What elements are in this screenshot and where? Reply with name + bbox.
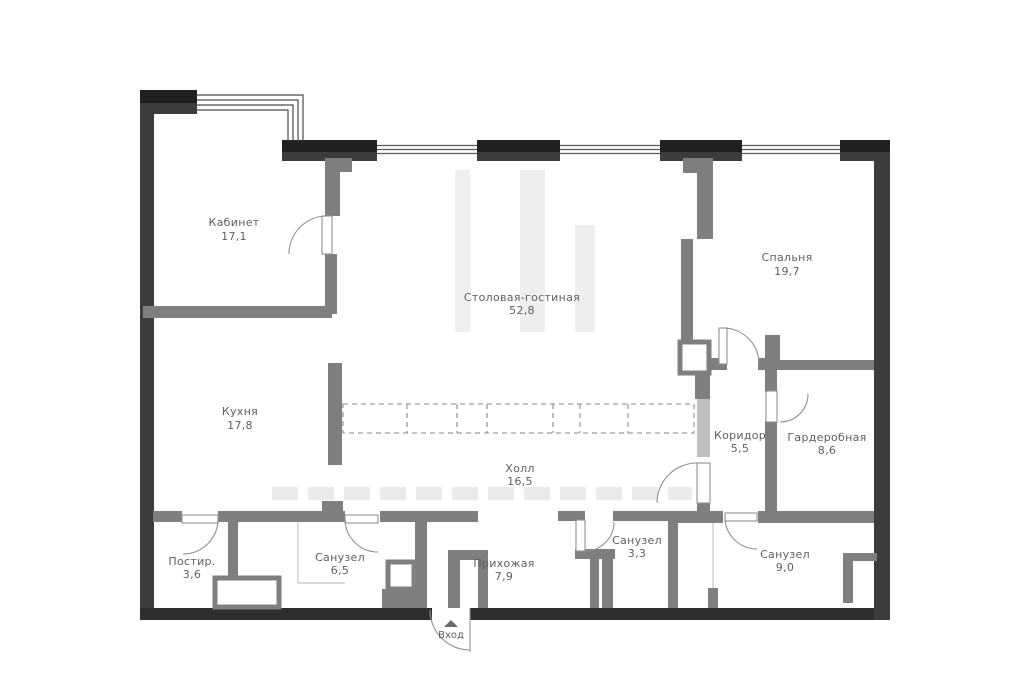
door-leaf <box>719 328 727 364</box>
svg-text:7,9: 7,9 <box>495 570 513 583</box>
svg-text:Спальня: Спальня <box>761 251 812 264</box>
door-arc <box>183 519 218 554</box>
door-leaf <box>766 391 777 422</box>
door-arc <box>289 216 327 254</box>
duct-box <box>680 342 709 373</box>
svg-text:Коридор: Коридор <box>714 429 766 442</box>
svg-text:Кухня: Кухня <box>222 405 258 418</box>
svg-text:3,6: 3,6 <box>183 568 201 581</box>
shaft-boxes <box>215 342 709 607</box>
svg-text:Санузел: Санузел <box>315 551 365 564</box>
duct-box <box>388 562 414 589</box>
entrance-arrow-icon <box>444 620 458 627</box>
room-label-sanuzel-1: Санузел 6,5 <box>315 551 365 577</box>
svg-text:17,8: 17,8 <box>227 419 253 432</box>
room-label-garderobnaya: Гардеробная 8,6 <box>787 431 866 457</box>
svg-text:Санузел: Санузел <box>760 548 810 561</box>
svg-text:Столовая-гостиная: Столовая-гостиная <box>464 291 580 304</box>
door-arc <box>780 394 808 422</box>
entrance-marker: Вход <box>438 620 464 641</box>
room-label-koridor: Коридор 5,5 <box>714 429 766 455</box>
door-leaf <box>182 515 218 523</box>
svg-text:6,5: 6,5 <box>331 564 349 577</box>
door-leaf <box>345 515 378 523</box>
entrance-label: Вход <box>438 630 464 641</box>
svg-text:Холл: Холл <box>505 462 535 475</box>
svg-text:Гардеробная: Гардеробная <box>787 431 866 444</box>
svg-text:3,3: 3,3 <box>628 547 646 560</box>
svg-text:52,8: 52,8 <box>509 304 535 317</box>
door-leaf <box>576 520 585 551</box>
room-label-kabinet: Кабинет 17,1 <box>209 216 260 243</box>
room-labels: Кабинет 17,1 Столовая-гостиная 52,8 Спал… <box>168 216 866 583</box>
door-leaf <box>322 216 332 254</box>
room-label-sanuzel-3: Санузел 9,0 <box>760 548 810 574</box>
door-arc <box>725 517 757 549</box>
door-leaf <box>697 463 710 503</box>
svg-text:Санузел: Санузел <box>612 534 662 547</box>
svg-text:17,1: 17,1 <box>221 230 247 243</box>
svg-text:8,6: 8,6 <box>818 444 836 457</box>
room-label-kuhnya: Кухня 17,8 <box>222 405 258 432</box>
wardrobe-dashed-outline <box>343 404 694 433</box>
room-label-holl: Холл 16,5 <box>505 462 535 488</box>
door-arc <box>585 522 614 551</box>
door-arc <box>723 328 759 364</box>
bay-window <box>197 95 303 141</box>
room-label-stolovaya: Столовая-гостиная 52,8 <box>464 291 580 317</box>
floor-plan: Кабинет 17,1 Столовая-гостиная 52,8 Спал… <box>0 0 1024 683</box>
svg-text:16,5: 16,5 <box>507 475 533 488</box>
svg-text:Прихожая: Прихожая <box>473 557 534 570</box>
door-arc <box>345 519 378 552</box>
floor-plan-drawing: Кабинет 17,1 Столовая-гостиная 52,8 Спал… <box>0 0 1024 683</box>
svg-text:5,5: 5,5 <box>731 442 749 455</box>
svg-text:Постир.: Постир. <box>168 555 215 568</box>
svg-text:Кабинет: Кабинет <box>209 216 260 229</box>
window-glazing <box>377 146 840 154</box>
door-leaf <box>725 513 757 521</box>
appliance-box <box>215 578 279 607</box>
room-label-postir: Постир. 3,6 <box>168 555 215 581</box>
svg-text:9,0: 9,0 <box>776 561 794 574</box>
svg-text:19,7: 19,7 <box>774 265 800 278</box>
room-label-spalnya: Спальня 19,7 <box>761 251 812 278</box>
room-label-sanuzel-2: Санузел 3,3 <box>612 534 662 560</box>
